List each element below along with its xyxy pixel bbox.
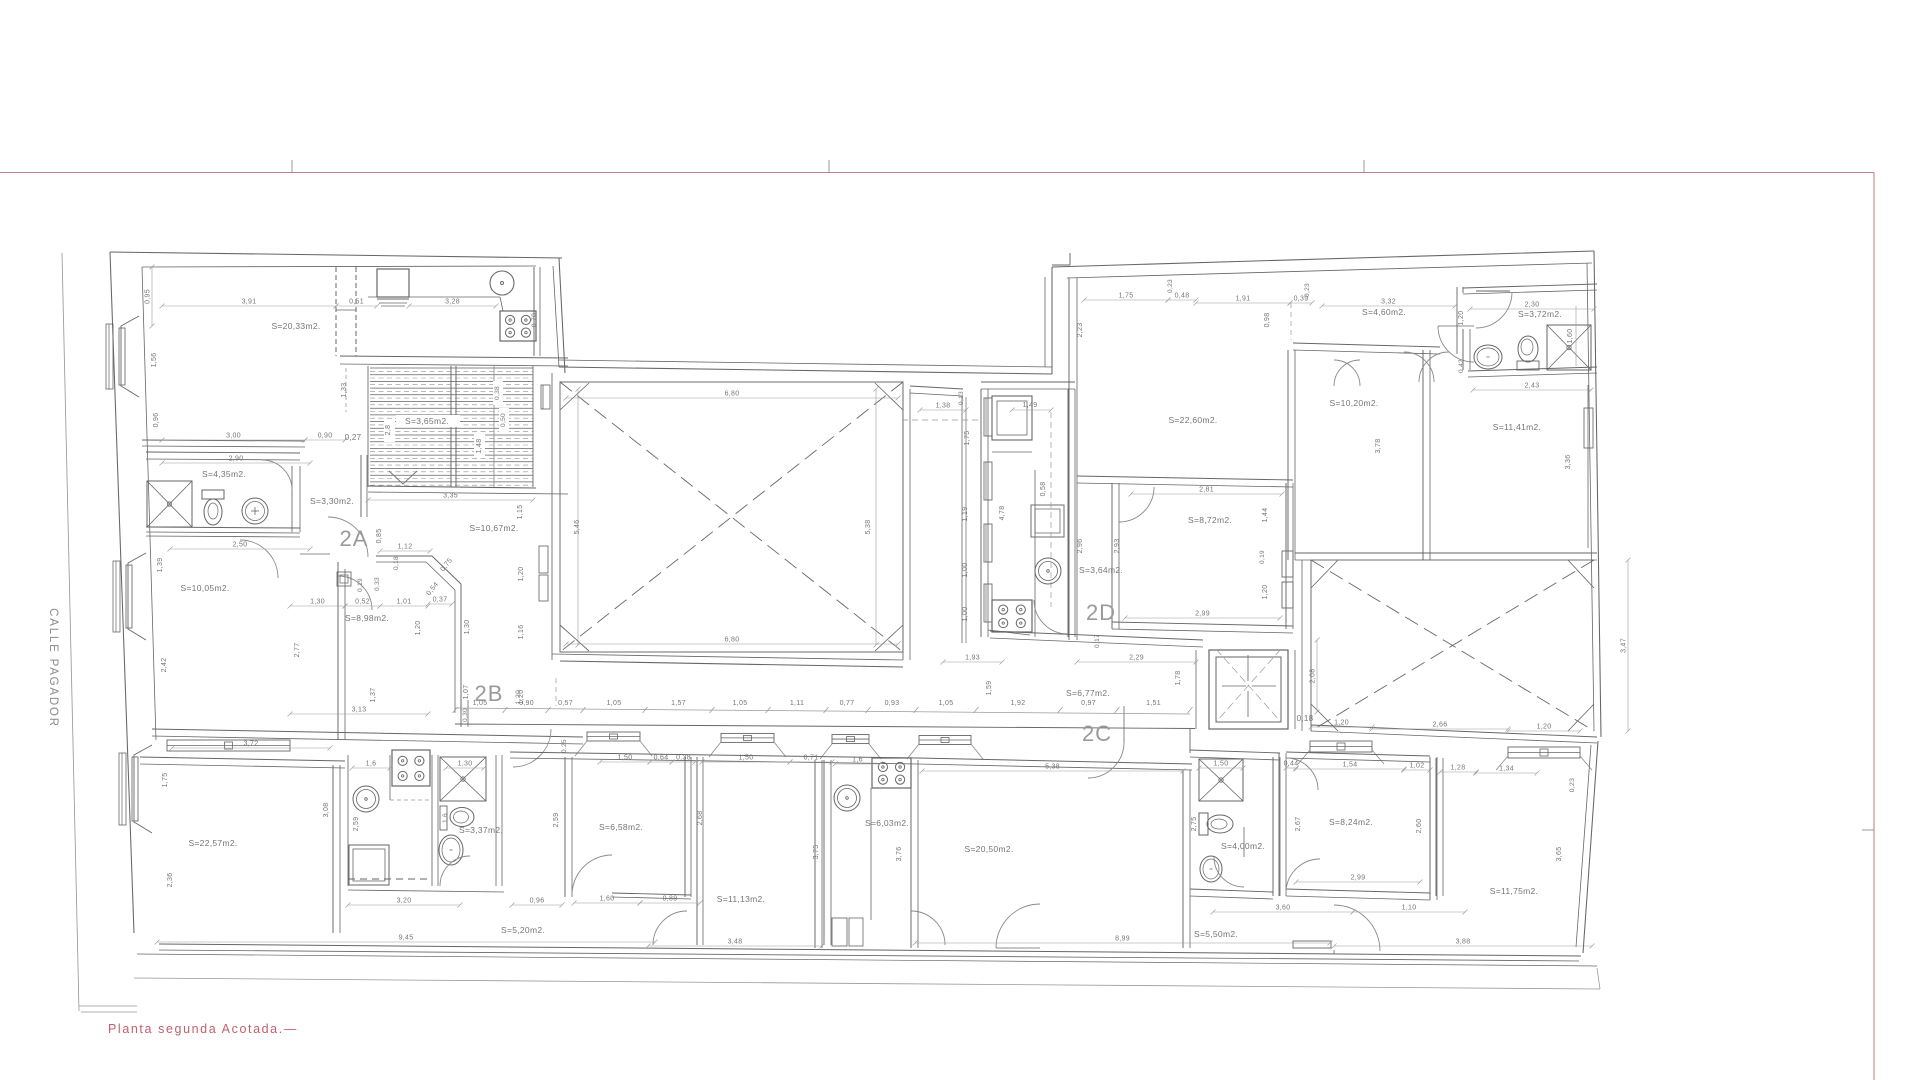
svg-text:3,00: 3,00 [226,433,241,440]
svg-text:0,98: 0,98 [1264,313,1271,328]
svg-text:3,36: 3,36 [1565,455,1572,470]
svg-text:1,28: 1,28 [1451,765,1466,772]
svg-text:2A: 2A [340,526,369,551]
svg-text:6,80: 6,80 [725,391,740,398]
svg-text:3,35: 3,35 [443,493,458,500]
svg-text:2,30: 2,30 [1525,302,1540,309]
svg-text:0,38: 0,38 [494,386,501,400]
svg-text:1,12: 1,12 [398,544,413,551]
svg-text:0,30: 0,30 [462,708,469,722]
svg-text:3,13: 3,13 [352,707,367,714]
svg-text:S=3,65m2.: S=3,65m2. [405,416,449,426]
svg-text:0,18: 0,18 [1297,714,1314,723]
svg-text:1,75: 1,75 [1119,293,1134,300]
svg-text:1,75: 1,75 [162,773,169,788]
svg-text:0,23: 0,23 [1304,283,1311,297]
svg-text:2,59: 2,59 [553,813,560,828]
svg-text:1,07: 1,07 [463,685,470,700]
svg-text:2,08: 2,08 [1310,669,1317,684]
svg-text:2,42: 2,42 [161,658,168,673]
svg-text:S=5,20m2.: S=5,20m2. [501,925,545,935]
svg-text:0,57: 0,57 [558,700,573,707]
svg-text:0,37: 0,37 [433,597,448,604]
svg-text:1,00: 1,00 [962,607,969,622]
svg-text:1,51: 1,51 [1146,700,1161,707]
svg-text:1,48: 1,48 [476,439,483,454]
svg-text:0,58: 0,58 [1040,482,1047,497]
svg-text:1,78: 1,78 [1175,671,1182,686]
svg-text:1,20: 1,20 [1537,724,1552,731]
svg-text:1,05: 1,05 [607,700,622,707]
svg-text:1,10: 1,10 [1402,905,1417,912]
svg-text:1,30: 1,30 [310,599,325,606]
svg-text:0,19: 0,19 [357,578,364,592]
svg-text:S=11,13m2.: S=11,13m2. [717,894,765,904]
svg-text:0,85: 0,85 [376,529,383,544]
svg-text:0,70: 0,70 [531,313,538,327]
svg-text:S=20,50m2.: S=20,50m2. [964,844,1013,854]
svg-text:1,20: 1,20 [1334,720,1349,727]
svg-text:S=8,24m2.: S=8,24m2. [1329,817,1373,827]
svg-text:3,28: 3,28 [445,299,460,306]
svg-text:0,77: 0,77 [840,700,855,707]
svg-text:1,6: 1,6 [852,757,863,764]
svg-text:0,44: 0,44 [1284,761,1299,768]
svg-text:3,78: 3,78 [1375,439,1382,454]
svg-text:1,30: 1,30 [464,620,471,635]
svg-text:S=5,50m2.: S=5,50m2. [1194,929,1238,939]
svg-text:0,48: 0,48 [1175,293,1190,300]
svg-text:2,75: 2,75 [1191,817,1198,832]
svg-text:0,33: 0,33 [374,577,381,591]
svg-text:1,16: 1,16 [518,625,525,640]
svg-text:1,54: 1,54 [1343,762,1358,769]
svg-text:1,00: 1,00 [962,563,969,578]
svg-text:0,13: 0,13 [958,391,965,405]
svg-text:1,75: 1,75 [964,431,971,446]
svg-text:1,30: 1,30 [458,761,473,768]
svg-text:3,88: 3,88 [1456,939,1471,946]
svg-text:0,97: 0,97 [1081,700,1096,707]
svg-text:0,96: 0,96 [153,413,160,428]
svg-text:1,57: 1,57 [671,700,686,707]
svg-text:S=6,77m2.: S=6,77m2. [1066,688,1110,698]
svg-text:2B: 2B [475,681,504,706]
svg-text:1,05: 1,05 [939,700,954,707]
svg-text:5,46: 5,46 [574,520,581,535]
svg-text:1,39: 1,39 [157,558,164,573]
svg-text:1,50: 1,50 [739,755,754,762]
svg-text:2,50: 2,50 [233,542,248,549]
svg-text:2,66: 2,66 [1433,722,1448,729]
svg-text:S=8,98m2.: S=8,98m2. [345,613,389,623]
svg-text:3,20: 3,20 [397,898,412,905]
svg-text:3,65: 3,65 [1556,847,1563,862]
svg-text:1,38: 1,38 [936,403,951,410]
svg-text:9,45: 9,45 [399,935,414,942]
svg-text:2,59: 2,59 [353,817,360,832]
svg-text:S=11,75m2.: S=11,75m2. [1490,886,1538,896]
svg-text:2,93: 2,93 [1114,539,1121,554]
svg-text:3,91: 3,91 [242,299,257,306]
svg-text:1,56: 1,56 [151,353,158,368]
svg-text:1,01: 1,01 [397,599,412,606]
svg-text:S=3,30m2.: S=3,30m2. [310,496,354,506]
svg-text:S=3,64m2.: S=3,64m2. [1079,565,1123,575]
svg-text:1,19: 1,19 [962,507,969,522]
svg-text:5,38: 5,38 [1045,764,1060,771]
svg-text:3,32: 3,32 [1381,299,1396,306]
svg-text:3,48: 3,48 [728,939,743,946]
svg-text:4,78: 4,78 [999,506,1006,521]
svg-text:2,96: 2,96 [1077,539,1084,554]
svg-text:0,90: 0,90 [519,700,534,707]
svg-text:S=3,37m2.: S=3,37m2. [459,825,503,835]
svg-text:2,99: 2,99 [1195,611,1210,618]
svg-text:S=22,57m2.: S=22,57m2. [188,838,237,848]
svg-text:5,38: 5,38 [865,520,872,535]
svg-text:2,8: 2,8 [385,425,392,436]
svg-text:S=4,35m2.: S=4,35m2. [202,469,246,479]
svg-text:S=4,60m2.: S=4,60m2. [1362,307,1406,317]
svg-text:1,50: 1,50 [618,755,633,762]
svg-text:3,47: 3,47 [1621,638,1628,653]
svg-text:0,90: 0,90 [318,433,333,440]
svg-text:0,51: 0,51 [349,299,364,306]
svg-text:0,96: 0,96 [530,898,545,905]
svg-text:3,75: 3,75 [813,845,820,860]
svg-text:2,68: 2,68 [697,811,704,826]
svg-text:S=8,72m2.: S=8,72m2. [1188,515,1232,525]
svg-text:3,60: 3,60 [1276,905,1291,912]
svg-text:CALLE PAGADOR: CALLE PAGADOR [47,608,59,728]
svg-text:1,37: 1,37 [370,688,377,703]
svg-text:S=6,03m2.: S=6,03m2. [865,818,909,828]
svg-text:1,6: 1,6 [366,761,377,768]
svg-text:1,60: 1,60 [1567,329,1574,344]
svg-text:1,49: 1,49 [1023,402,1038,409]
svg-text:0,18: 0,18 [393,556,400,570]
svg-text:6,80: 6,80 [725,637,740,644]
svg-text:1,93: 1,93 [965,655,980,662]
svg-text:1,50: 1,50 [1214,761,1229,768]
svg-text:S=3,72m2.: S=3,72m2. [1518,309,1562,319]
svg-text:S=10,05m2.: S=10,05m2. [180,583,229,593]
svg-text:2,23: 2,23 [1077,323,1084,338]
svg-text:0,52: 0,52 [355,599,370,606]
svg-text:S=6,58m2.: S=6,58m2. [599,822,643,832]
svg-text:0,50: 0,50 [500,413,507,427]
svg-text:S=11,41m2.: S=11,41m2. [1493,422,1541,432]
svg-text:1,20: 1,20 [1262,585,1269,600]
svg-text:1,20: 1,20 [518,567,525,582]
svg-text:3,76: 3,76 [896,847,903,862]
svg-text:1,92: 1,92 [1011,700,1026,707]
svg-text:1,11: 1,11 [790,700,804,707]
svg-text:0,95: 0,95 [145,289,152,304]
svg-text:1,02: 1,02 [1410,763,1425,770]
svg-text:2,36: 2,36 [167,873,174,888]
svg-text:2,29: 2,29 [1129,655,1144,662]
svg-text:0,19: 0,19 [1259,550,1266,564]
svg-text:2,60: 2,60 [1416,819,1423,834]
svg-text:1,34: 1,34 [1499,766,1514,773]
svg-text:2,90: 2,90 [229,456,244,463]
svg-text:0,17: 0,17 [1094,634,1101,648]
svg-text:2D: 2D [1086,600,1116,625]
svg-text:1,60: 1,60 [600,896,615,903]
svg-text:0,23: 0,23 [1569,778,1576,792]
svg-text:0,38: 0,38 [676,755,691,762]
svg-text:0,89: 0,89 [663,896,678,903]
svg-text:1,33: 1,33 [341,383,348,398]
svg-text:2,67: 2,67 [1295,817,1302,832]
svg-text:1,6: 1,6 [442,813,449,823]
svg-text:8,99: 8,99 [1115,936,1130,943]
svg-text:1,20: 1,20 [1458,311,1465,326]
svg-text:1,44: 1,44 [1262,508,1269,523]
svg-text:2,81: 2,81 [1199,487,1214,494]
svg-text:1,59: 1,59 [986,681,993,696]
svg-text:1,05: 1,05 [733,700,748,707]
svg-text:1,20: 1,20 [415,621,422,636]
svg-text:0,27: 0,27 [345,433,362,442]
svg-text:3,08: 3,08 [323,803,330,818]
svg-text:2C: 2C [1082,721,1112,746]
svg-text:0,93: 0,93 [885,700,900,707]
svg-text:1,91: 1,91 [1236,296,1251,303]
svg-text:3,72: 3,72 [244,741,259,748]
svg-text:S=22,60m2.: S=22,60m2. [1168,415,1217,425]
svg-text:0,64: 0,64 [654,755,669,762]
svg-text:0,23: 0,23 [1167,279,1174,293]
svg-text:0,25: 0,25 [561,739,568,753]
svg-text:S=10,20m2.: S=10,20m2. [1329,398,1378,408]
svg-text:2,77: 2,77 [294,643,301,658]
svg-text:S=20,33m2.: S=20,33m2. [271,321,320,331]
svg-text:0,71: 0,71 [804,755,819,762]
svg-text:0,42: 0,42 [1458,359,1465,373]
svg-text:2,99: 2,99 [1351,875,1366,882]
svg-text:Planta segunda Acotada.—: Planta segunda Acotada.— [108,1022,298,1036]
svg-text:S=10,67m2.: S=10,67m2. [469,523,518,533]
svg-text:2,43: 2,43 [1525,383,1540,390]
svg-text:S=4,00m2.: S=4,00m2. [1221,841,1265,851]
svg-text:1,15: 1,15 [517,505,524,520]
